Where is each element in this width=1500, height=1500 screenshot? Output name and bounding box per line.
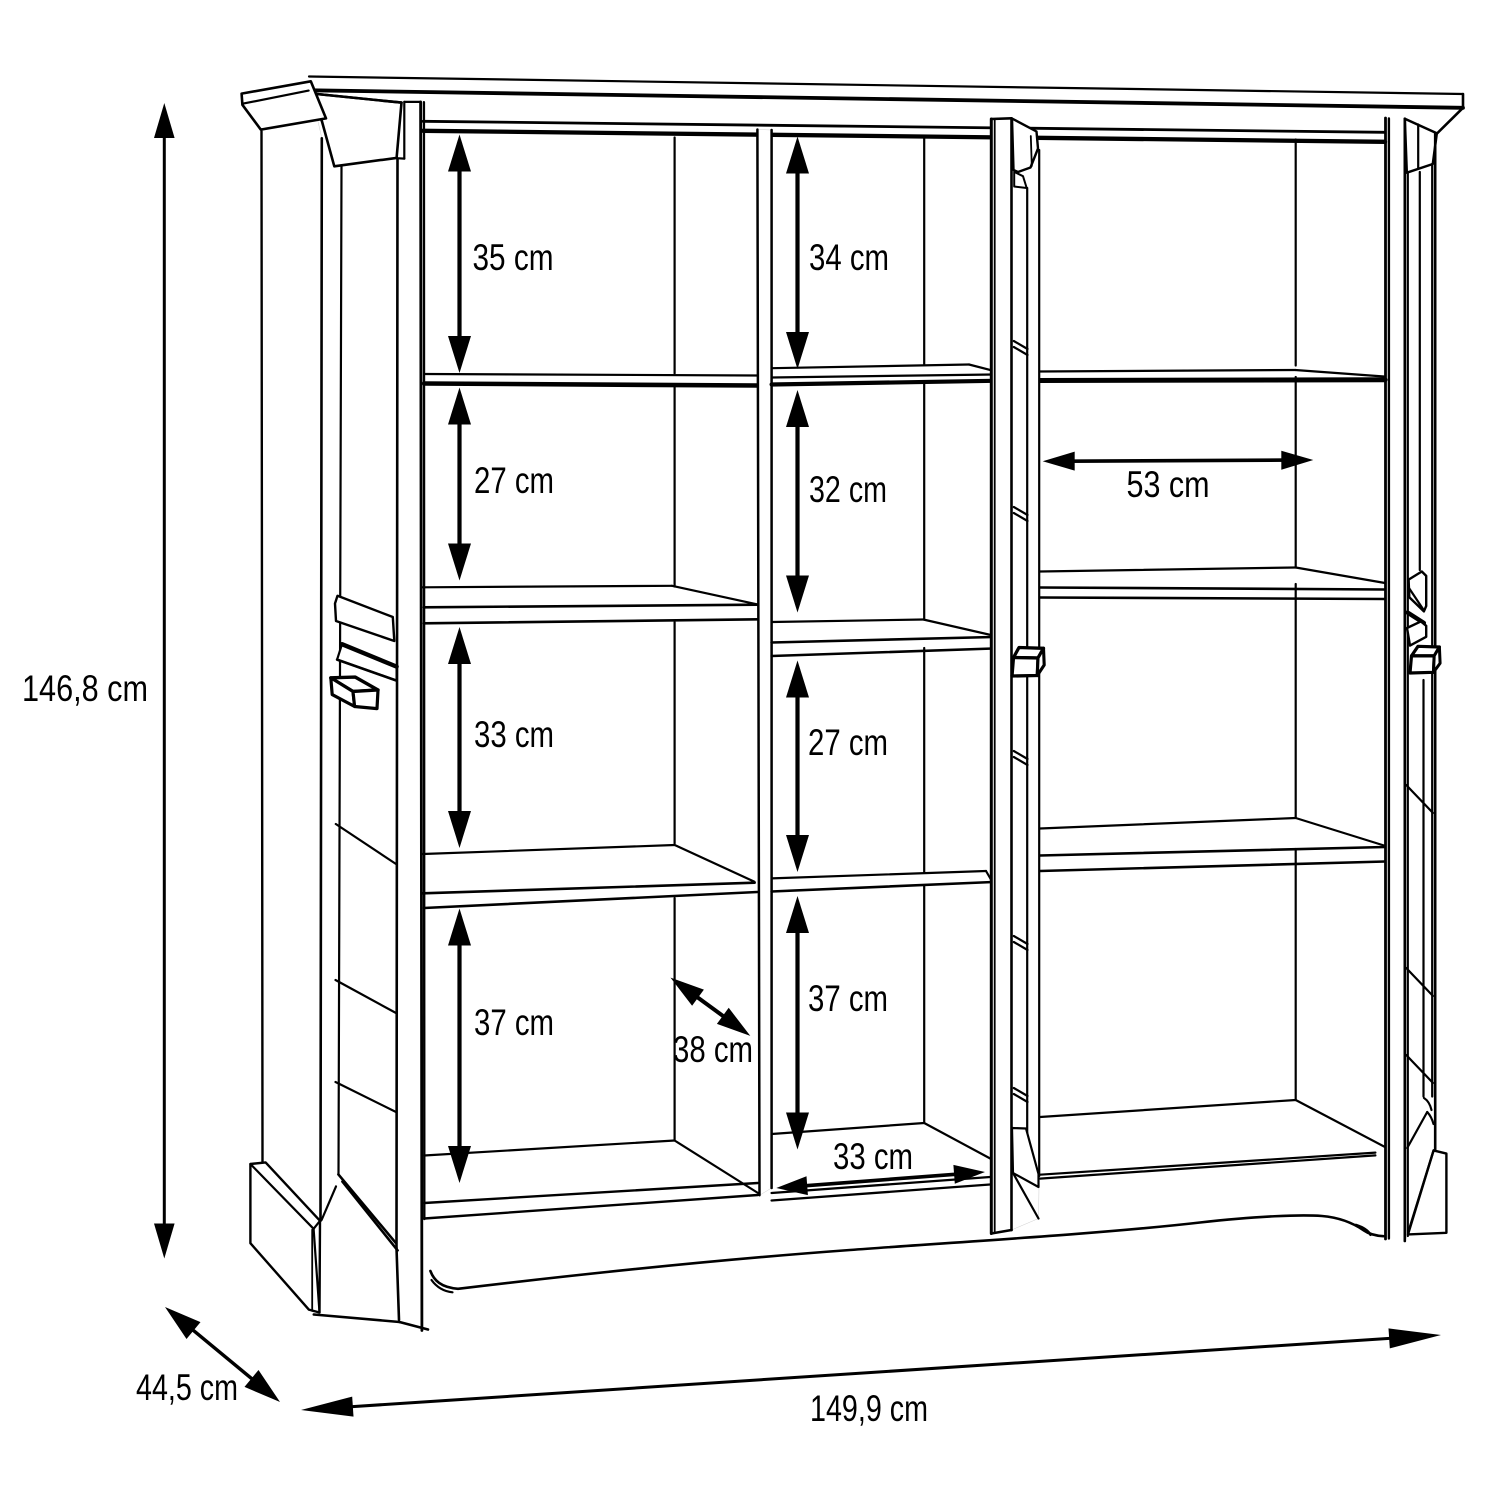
svg-text:37 cm: 37 cm: [808, 978, 888, 1019]
svg-text:37 cm: 37 cm: [474, 1002, 554, 1043]
svg-text:34 cm: 34 cm: [809, 237, 889, 278]
svg-text:33 cm: 33 cm: [833, 1136, 913, 1177]
svg-text:38 cm: 38 cm: [673, 1029, 753, 1070]
svg-text:35 cm: 35 cm: [473, 237, 554, 278]
svg-text:32 cm: 32 cm: [809, 469, 887, 510]
svg-text:149,9 cm: 149,9 cm: [810, 1388, 928, 1429]
svg-text:146,8 cm: 146,8 cm: [22, 668, 148, 709]
svg-text:53 cm: 53 cm: [1127, 464, 1210, 505]
svg-text:44,5 cm: 44,5 cm: [136, 1367, 238, 1408]
svg-text:33 cm: 33 cm: [474, 714, 554, 755]
svg-text:27 cm: 27 cm: [808, 722, 888, 763]
svg-text:27 cm: 27 cm: [474, 460, 554, 501]
